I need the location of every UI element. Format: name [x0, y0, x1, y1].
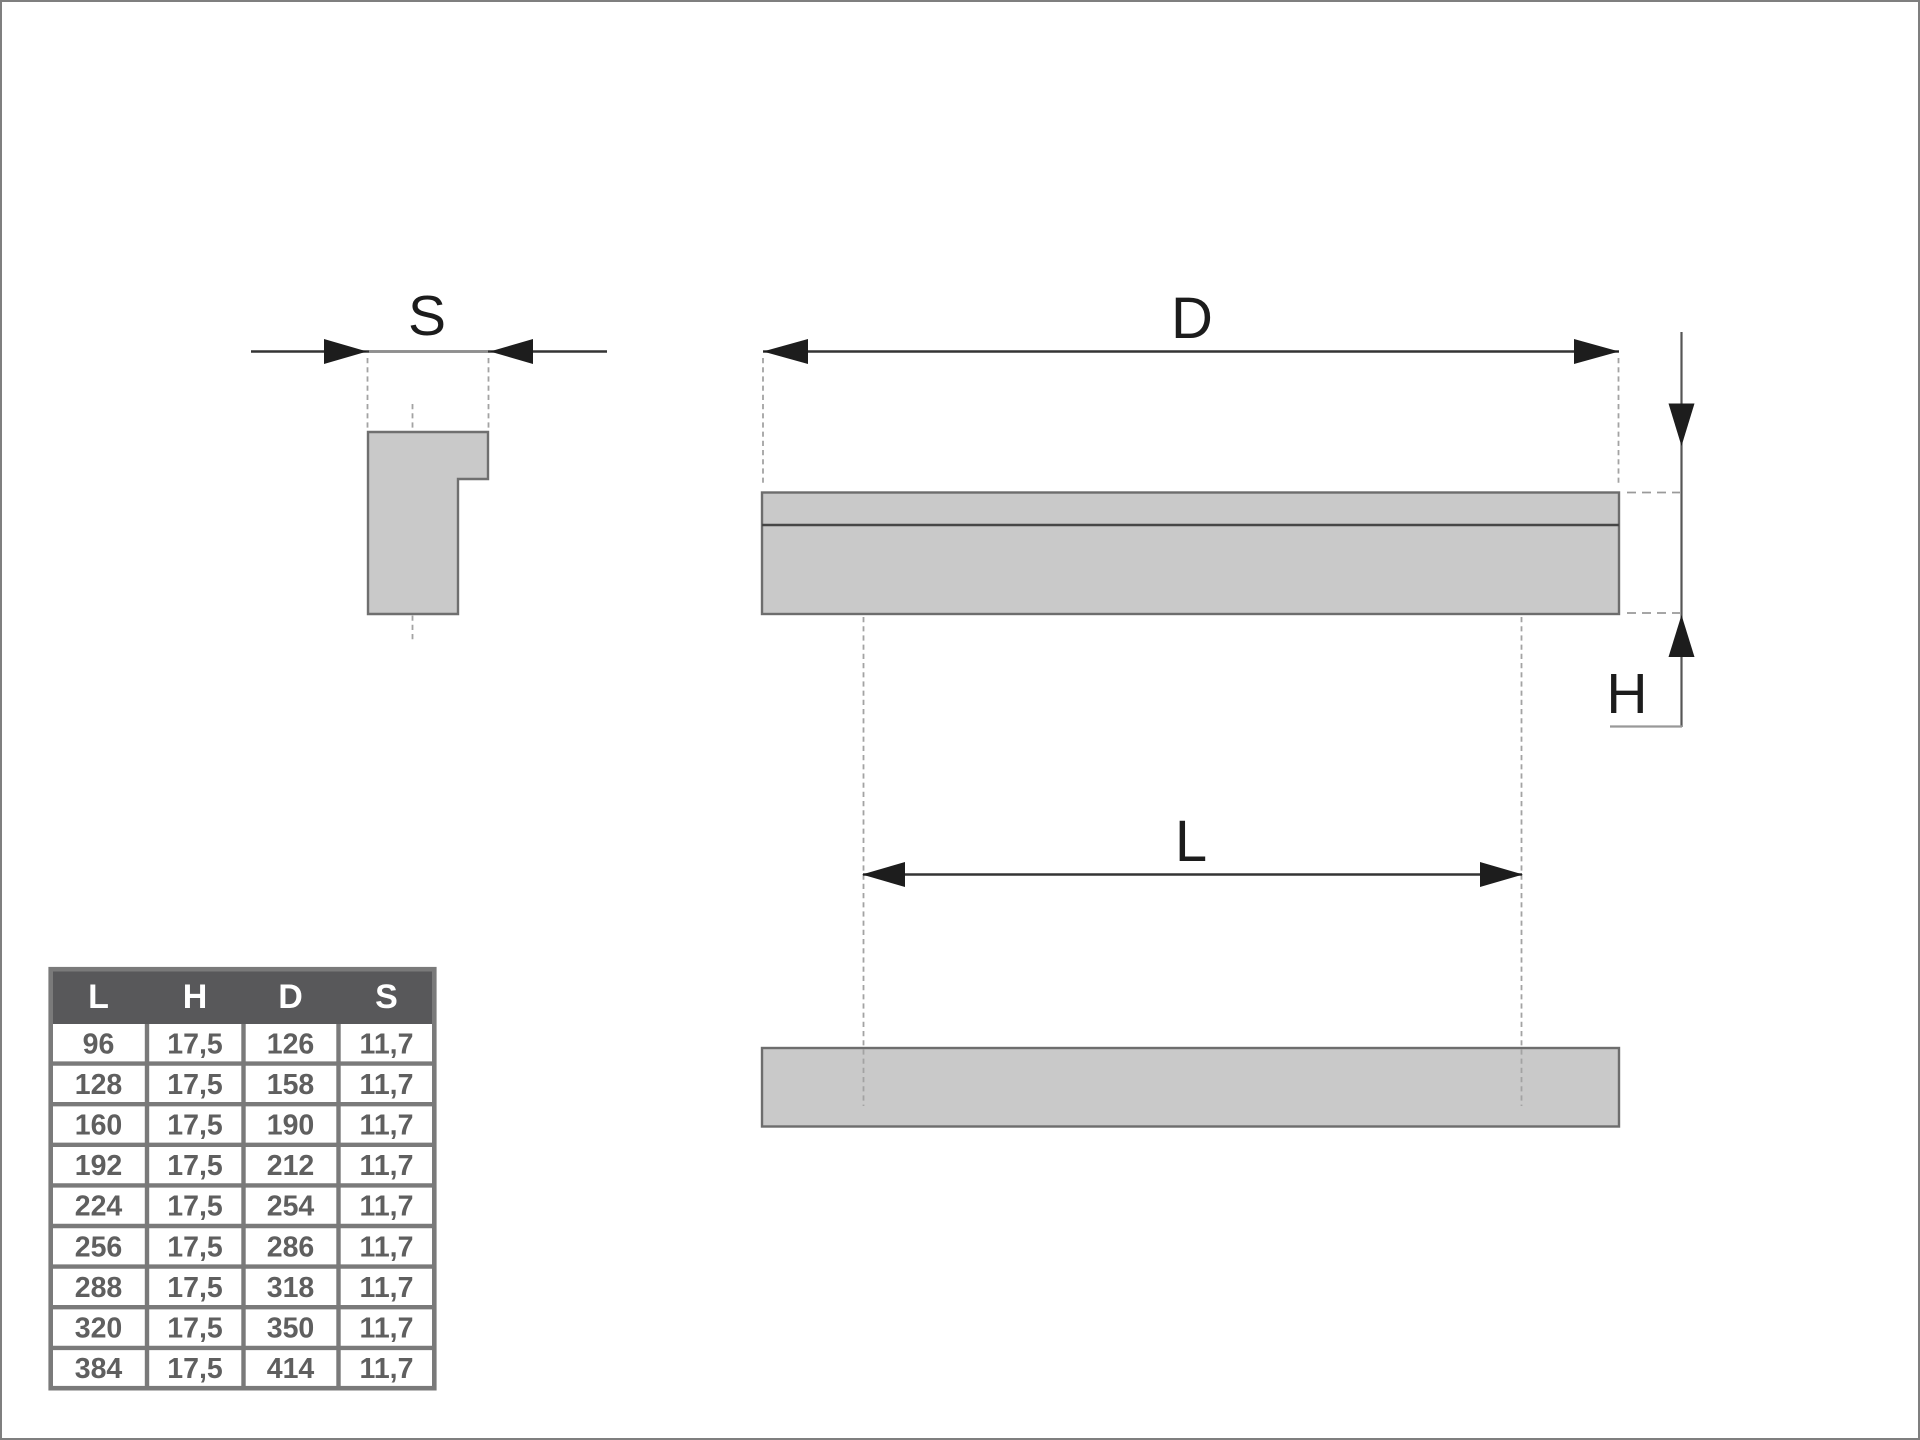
svg-text:17,5: 17,5 [167, 1353, 223, 1385]
svg-text:256: 256 [75, 1231, 123, 1263]
svg-text:11,7: 11,7 [360, 1028, 414, 1060]
svg-text:126: 126 [267, 1028, 315, 1060]
svg-text:D: D [1171, 286, 1213, 351]
svg-text:192: 192 [75, 1150, 123, 1182]
svg-text:11,7: 11,7 [360, 1313, 414, 1345]
svg-text:17,5: 17,5 [167, 1313, 223, 1345]
svg-text:17,5: 17,5 [167, 1069, 223, 1101]
svg-text:11,7: 11,7 [360, 1069, 414, 1101]
svg-text:17,5: 17,5 [167, 1028, 223, 1060]
svg-text:11,7: 11,7 [360, 1272, 414, 1304]
svg-text:160: 160 [75, 1110, 123, 1142]
svg-text:318: 318 [267, 1272, 315, 1304]
svg-text:288: 288 [75, 1272, 123, 1304]
svg-text:S: S [408, 284, 446, 348]
svg-text:350: 350 [267, 1313, 315, 1345]
svg-text:286: 286 [267, 1231, 315, 1263]
svg-text:254: 254 [267, 1191, 315, 1223]
svg-text:158: 158 [267, 1069, 315, 1101]
svg-text:17,5: 17,5 [167, 1150, 223, 1182]
svg-text:H: H [183, 978, 208, 1016]
svg-text:H: H [1606, 662, 1647, 726]
svg-text:D: D [278, 978, 303, 1016]
svg-text:17,5: 17,5 [167, 1110, 223, 1142]
svg-text:320: 320 [75, 1313, 123, 1345]
svg-text:L: L [1175, 809, 1207, 874]
svg-text:11,7: 11,7 [360, 1353, 414, 1385]
svg-text:190: 190 [267, 1110, 315, 1142]
svg-text:11,7: 11,7 [360, 1191, 414, 1223]
svg-text:11,7: 11,7 [360, 1231, 414, 1263]
svg-text:17,5: 17,5 [167, 1231, 223, 1263]
svg-text:L: L [88, 978, 109, 1016]
svg-text:11,7: 11,7 [360, 1110, 414, 1142]
svg-text:17,5: 17,5 [167, 1191, 223, 1223]
svg-text:224: 224 [75, 1191, 123, 1223]
svg-text:11,7: 11,7 [360, 1150, 414, 1182]
svg-text:212: 212 [267, 1150, 315, 1182]
svg-text:S: S [375, 978, 398, 1016]
svg-text:128: 128 [75, 1069, 123, 1101]
svg-text:96: 96 [83, 1028, 115, 1060]
svg-text:17,5: 17,5 [167, 1272, 223, 1304]
svg-text:384: 384 [75, 1353, 123, 1385]
svg-text:414: 414 [267, 1353, 315, 1385]
